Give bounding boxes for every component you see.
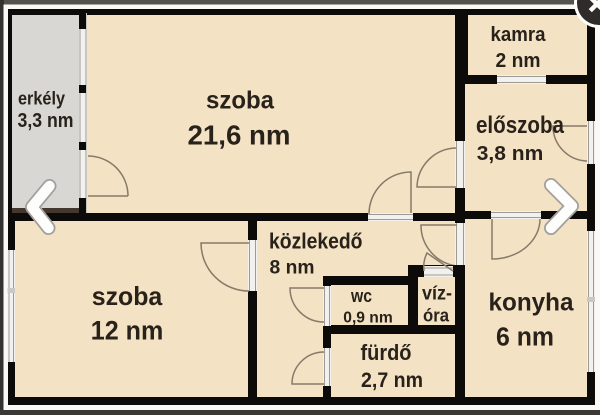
svg-text:közlekedő: közlekedő [269,229,363,254]
svg-text:szoba: szoba [92,281,163,311]
svg-text:víz-: víz- [422,284,452,305]
svg-text:2,7 nm: 2,7 nm [361,368,423,392]
svg-text:fürdő: fürdő [361,340,412,365]
svg-text:3,8 nm: 3,8 nm [477,143,544,165]
svg-text:12 nm: 12 nm [91,316,164,346]
svg-text:szoba: szoba [206,87,275,115]
svg-text:0,9 nm: 0,9 nm [343,310,393,327]
svg-text:2 nm: 2 nm [496,50,541,72]
svg-text:3,3 nm: 3,3 nm [18,110,74,132]
svg-text:előszoba: előszoba [476,112,565,139]
svg-text:21,6 nm: 21,6 nm [188,120,291,151]
svg-text:konyha: konyha [489,289,575,317]
svg-text:6 nm: 6 nm [496,324,554,352]
svg-text:óra: óra [423,306,450,326]
svg-text:wc: wc [350,286,372,306]
svg-text:8 nm: 8 nm [270,257,315,279]
svg-text:kamra: kamra [491,23,547,46]
svg-text:erkély: erkély [18,88,66,109]
